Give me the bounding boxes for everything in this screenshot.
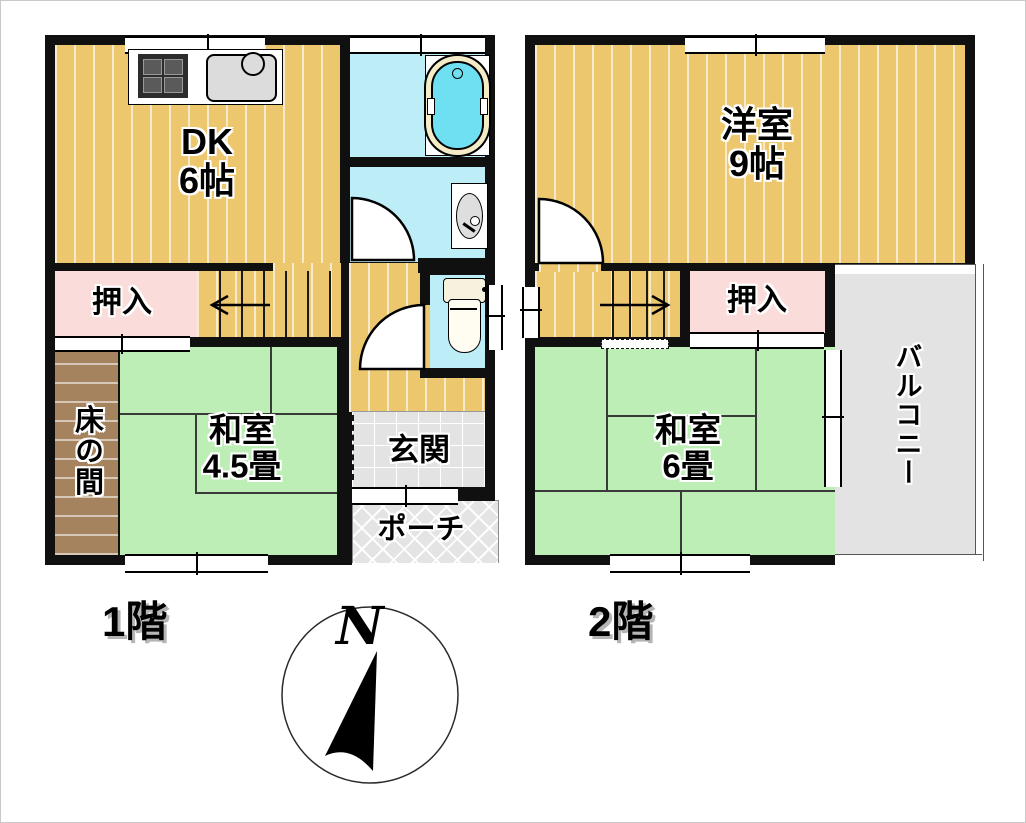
floor1-label: 1階 — [102, 588, 167, 649]
tatami-line — [270, 347, 272, 415]
compass-circle — [282, 607, 458, 783]
room-label-washitsu-2f: 和室 6畳 — [655, 412, 721, 483]
window-youshitsu — [685, 36, 825, 54]
compass-needle — [325, 651, 377, 771]
toilet-door-opening — [420, 305, 430, 368]
room-label-oshiire-2f: 押入 — [727, 285, 787, 317]
sink-icon — [206, 54, 277, 102]
room-size: 9帖 — [721, 145, 793, 184]
tatami-line — [680, 490, 682, 555]
wall-segment — [458, 487, 495, 501]
stair-tread — [307, 271, 309, 337]
youshitsu-doorway — [539, 263, 601, 272]
compass-north-label: N — [334, 596, 386, 657]
room-name: 洋室 — [721, 106, 793, 145]
room-label-tokonoma: 床の間 — [72, 405, 101, 498]
stairs-2f — [535, 271, 680, 337]
room-label-youshitsu: 洋室 9帖 — [721, 106, 793, 184]
burner — [164, 77, 183, 93]
flush-button — [482, 287, 487, 292]
stair-tread — [263, 271, 265, 337]
fusuma-oshiire-1f — [55, 336, 190, 352]
stair-tread — [629, 271, 631, 337]
floor-plan: N DK 6帖 押入 床の間 和室 4.5畳 玄関 ポーチ 洋室 9帖 押入 和… — [0, 0, 1026, 823]
faucet — [470, 216, 480, 226]
bathtub-icon — [425, 55, 490, 156]
room-label-porch: ポーチ — [377, 514, 464, 545]
tatami-line — [535, 490, 835, 492]
room-label-dk: DK 6帖 — [179, 123, 235, 201]
grab-bar — [480, 98, 488, 115]
genkan-cabinet-dashed-line — [352, 415, 358, 480]
window-stairs-2f — [522, 287, 540, 338]
tatami-line — [195, 413, 197, 494]
floor2-label: 2階 — [588, 588, 653, 649]
room-name: 和室 — [203, 412, 282, 448]
drain — [452, 68, 463, 79]
balcony-clear — [835, 561, 985, 569]
stair-tread — [241, 271, 243, 337]
stove-icon — [138, 54, 188, 98]
room-label-genkan: 玄関 — [388, 433, 450, 466]
stair-tread — [219, 271, 221, 337]
stair-tread — [646, 271, 648, 337]
front-door — [352, 487, 458, 505]
room-label-oshiire-1f: 押入 — [92, 287, 152, 319]
room-size: 4.5畳 — [203, 448, 282, 484]
stair-tread — [285, 271, 287, 337]
window-washitsu-2f-balcony — [824, 350, 842, 487]
room-name: DK — [179, 123, 235, 162]
tatami-line — [195, 492, 337, 494]
toilet-bowl — [448, 299, 481, 353]
window-bathroom — [350, 36, 485, 54]
tatami-line — [606, 347, 608, 492]
seat-line — [450, 308, 477, 310]
window-toilet — [487, 285, 503, 350]
basin — [456, 193, 483, 239]
burner — [164, 59, 183, 75]
genkan-hall-divider — [352, 411, 485, 412]
compass-icon: N — [282, 596, 458, 783]
room-label-washitsu-1f: 和室 4.5畳 — [203, 412, 282, 483]
fusuma-oshiire-2f — [690, 332, 824, 349]
stair-tread — [663, 271, 665, 337]
window-washitsu-1f — [125, 554, 268, 573]
window-washitsu-2f — [610, 554, 750, 573]
burner — [143, 59, 162, 75]
room-name: 和室 — [655, 412, 721, 448]
porch-clear — [352, 563, 499, 569]
stair-tread — [612, 271, 614, 337]
room-size: 6帖 — [179, 162, 235, 201]
burner — [143, 77, 162, 93]
washbasin-icon — [451, 183, 488, 249]
room-size: 6畳 — [655, 448, 721, 484]
balcony-railing-right — [975, 264, 984, 561]
room-label-balcony: バルコニー — [893, 343, 920, 488]
grab-bar — [427, 98, 435, 115]
tatami-line — [755, 347, 757, 492]
faucet — [241, 52, 265, 76]
stair-tread — [329, 271, 331, 337]
stair-headroom-dashed-line — [601, 339, 669, 349]
